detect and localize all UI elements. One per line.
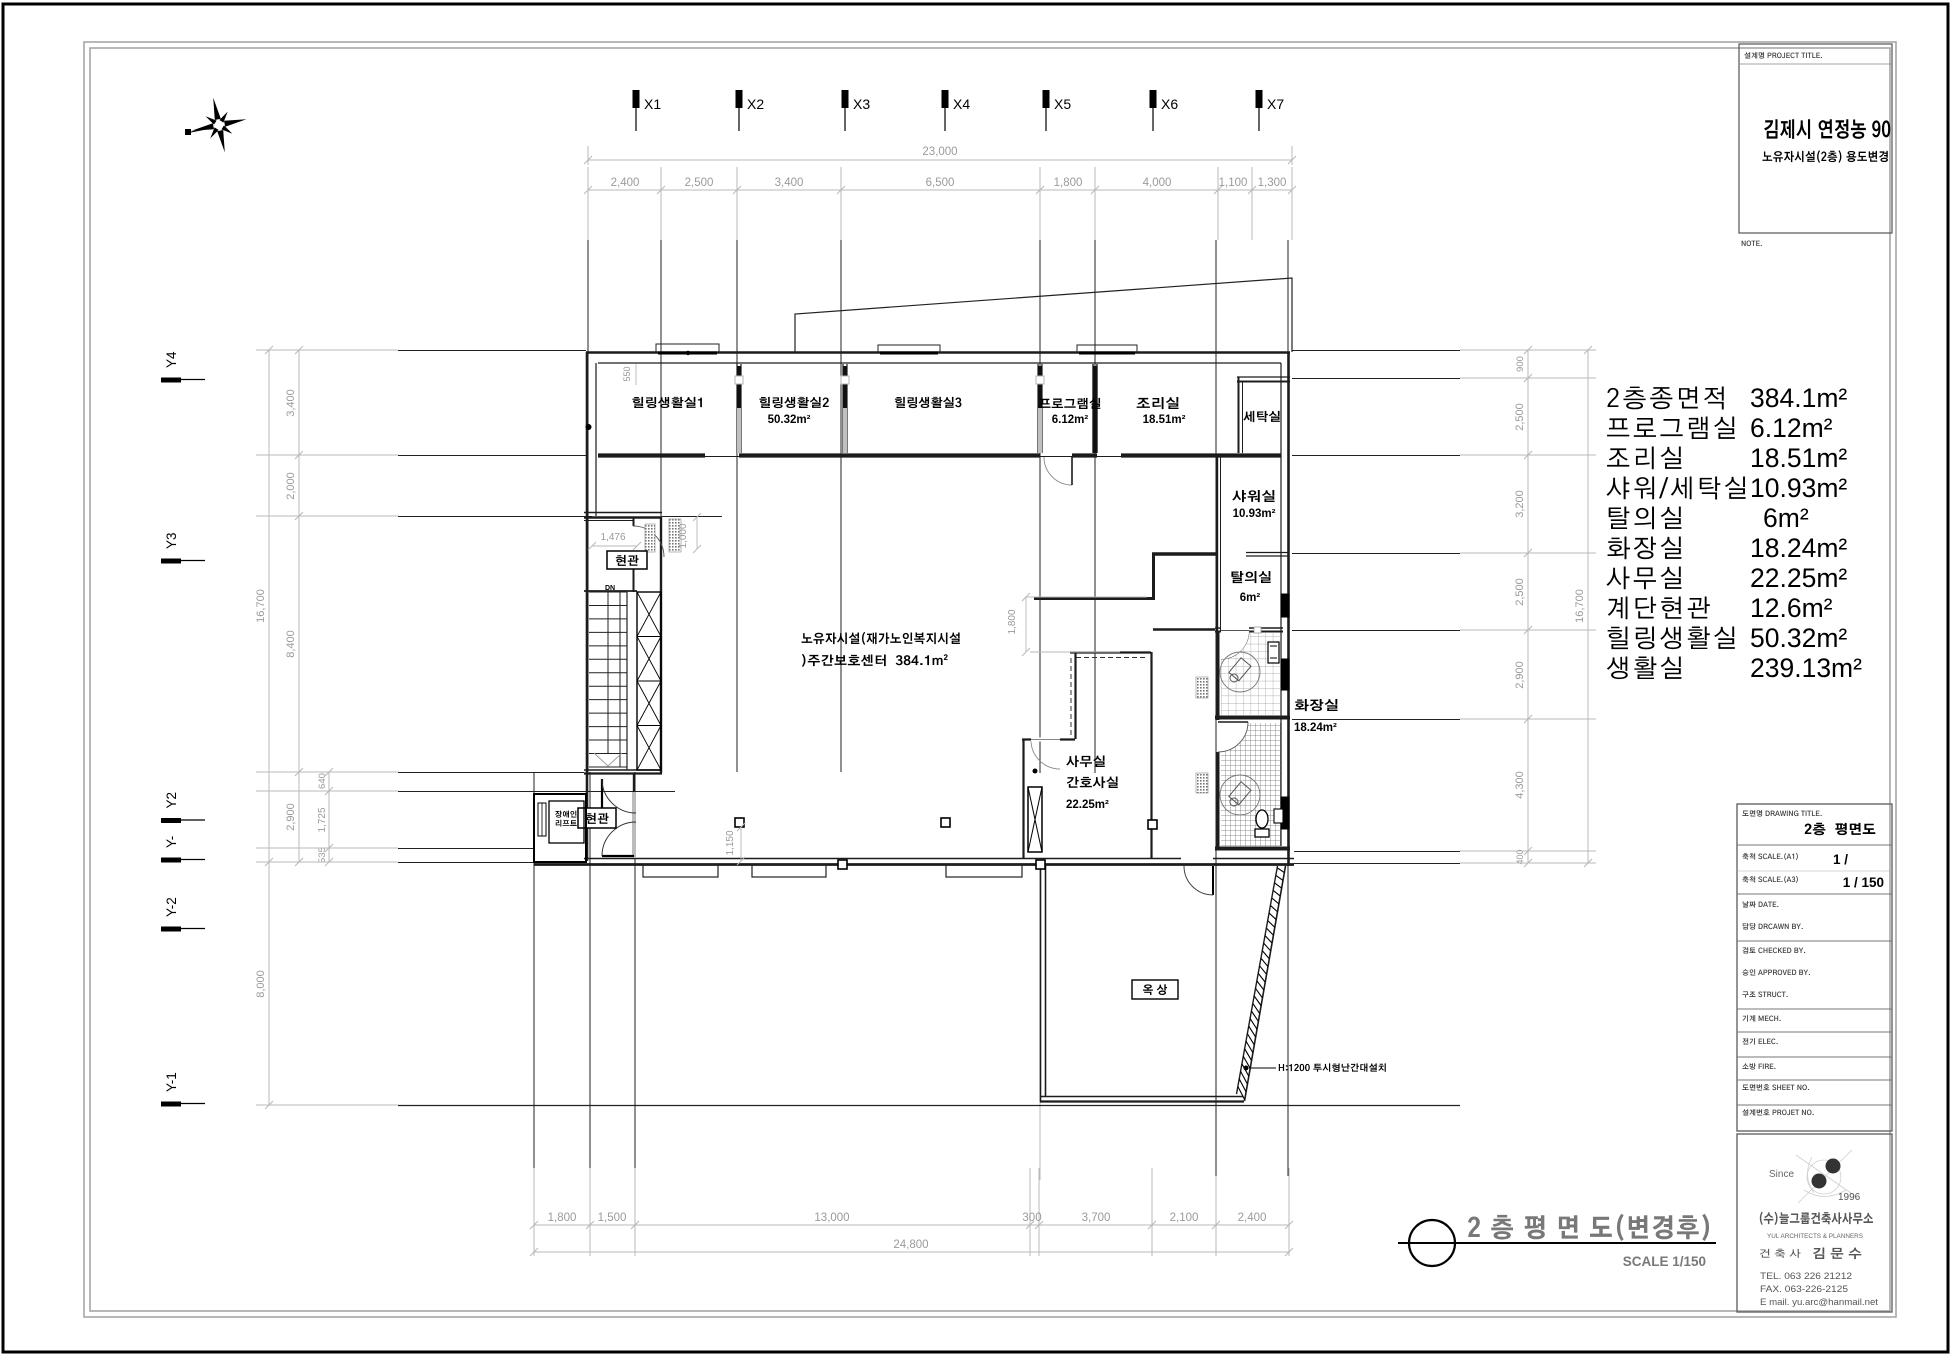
svg-text:X2: X2 (747, 96, 764, 112)
svg-text:24,800: 24,800 (893, 1239, 928, 1251)
svg-text:22.25m²: 22.25m² (1066, 799, 1109, 811)
svg-text:X4: X4 (953, 96, 970, 112)
svg-text:2,900: 2,900 (285, 803, 297, 831)
svg-text:16,700: 16,700 (255, 589, 267, 623)
svg-text:50.32m²: 50.32m² (1750, 623, 1847, 653)
svg-text:10.93m²: 10.93m² (1750, 473, 1847, 503)
svg-text:Y-1: Y-1 (164, 1072, 179, 1092)
svg-text:FAX. 063-226-2125: FAX. 063-226-2125 (1760, 1284, 1848, 1295)
svg-text:DN: DN (605, 585, 615, 592)
svg-text:Y-2: Y-2 (164, 897, 179, 917)
svg-text:6.12m²: 6.12m² (1052, 414, 1089, 426)
svg-text:300: 300 (1022, 1212, 1041, 1224)
svg-text:1,500: 1,500 (598, 1212, 627, 1224)
svg-text:2,500: 2,500 (685, 177, 714, 189)
svg-text:3,700: 3,700 (1082, 1212, 1111, 1224)
svg-text:8,400: 8,400 (285, 630, 297, 658)
svg-text:550: 550 (622, 366, 632, 381)
svg-text:1,800: 1,800 (548, 1212, 577, 1224)
svg-text:SCALE 1/150: SCALE 1/150 (1623, 1254, 1706, 1269)
svg-text:YUL ARCHITECTS & PLANNERS: YUL ARCHITECTS & PLANNERS (1767, 1233, 1864, 1240)
svg-text:384.1m²: 384.1m² (1750, 383, 1847, 413)
svg-text:1,725: 1,725 (317, 807, 328, 832)
svg-text:1 / 150: 1 / 150 (1843, 875, 1884, 890)
svg-text:18.51m²: 18.51m² (1143, 414, 1186, 426)
svg-text:2,900: 2,900 (1514, 661, 1526, 689)
svg-text:3,400: 3,400 (285, 389, 297, 417)
svg-text:50.32m²: 50.32m² (768, 414, 811, 426)
svg-text:640: 640 (317, 773, 328, 789)
svg-text:Y4: Y4 (164, 351, 179, 368)
svg-text:12.6m²: 12.6m² (1750, 593, 1833, 623)
svg-text:6m²: 6m² (1763, 503, 1809, 533)
svg-text:18.24m²: 18.24m² (1750, 533, 1847, 563)
svg-text:X7: X7 (1267, 96, 1284, 112)
svg-text:16,700: 16,700 (1574, 589, 1586, 623)
svg-text:535: 535 (317, 847, 328, 863)
svg-text:1 /: 1 / (1833, 852, 1848, 867)
svg-text:1,800: 1,800 (1007, 609, 1018, 634)
svg-text:22.25m²: 22.25m² (1750, 563, 1847, 593)
svg-text:Y3: Y3 (164, 532, 179, 549)
svg-text:1,100: 1,100 (1219, 177, 1248, 189)
svg-text:13,000: 13,000 (814, 1212, 849, 1224)
svg-text:1,476: 1,476 (600, 532, 625, 543)
svg-text:4,000: 4,000 (1143, 177, 1172, 189)
svg-text:Since: Since (1769, 1169, 1794, 1180)
svg-text:900: 900 (1515, 356, 1526, 372)
svg-text:2,500: 2,500 (1514, 403, 1526, 431)
svg-text:1,800: 1,800 (1054, 177, 1083, 189)
svg-text:6m²: 6m² (1240, 592, 1261, 604)
svg-text:4,300: 4,300 (1514, 771, 1526, 799)
svg-text:3,400: 3,400 (775, 177, 804, 189)
svg-text:X1: X1 (644, 96, 661, 112)
svg-text:1,150: 1,150 (725, 830, 736, 855)
svg-text:3,200: 3,200 (1514, 490, 1526, 518)
svg-text:400: 400 (1515, 849, 1525, 864)
svg-text:Y-: Y- (164, 836, 179, 848)
svg-text:10.93m²: 10.93m² (1233, 508, 1276, 520)
svg-text:8,000: 8,000 (255, 970, 267, 998)
svg-text:1,300: 1,300 (1258, 177, 1287, 189)
svg-text:X3: X3 (853, 96, 870, 112)
svg-text:2,500: 2,500 (1514, 578, 1526, 606)
svg-text:6,500: 6,500 (926, 177, 955, 189)
svg-text:X5: X5 (1054, 96, 1071, 112)
svg-text:23,000: 23,000 (922, 146, 957, 158)
svg-text:2,400: 2,400 (611, 177, 640, 189)
svg-text:2,400: 2,400 (1238, 1212, 1267, 1224)
svg-text:Y2: Y2 (164, 792, 179, 809)
svg-text:6.12m²: 6.12m² (1750, 413, 1833, 443)
svg-text:18.51m²: 18.51m² (1750, 443, 1847, 473)
svg-text:239.13m²: 239.13m² (1750, 653, 1862, 683)
svg-text:E mail. yu.arc@hanmail.net: E mail. yu.arc@hanmail.net (1760, 1297, 1878, 1308)
svg-text:2,000: 2,000 (285, 472, 297, 500)
svg-text:18.24m²: 18.24m² (1294, 722, 1337, 734)
svg-text:TEL. 063 226 21212: TEL. 063 226 21212 (1760, 1271, 1852, 1282)
svg-text:1,000: 1,000 (678, 523, 689, 548)
svg-text:X6: X6 (1161, 96, 1178, 112)
svg-text:1996: 1996 (1838, 1192, 1861, 1203)
svg-text:2,100: 2,100 (1170, 1212, 1199, 1224)
